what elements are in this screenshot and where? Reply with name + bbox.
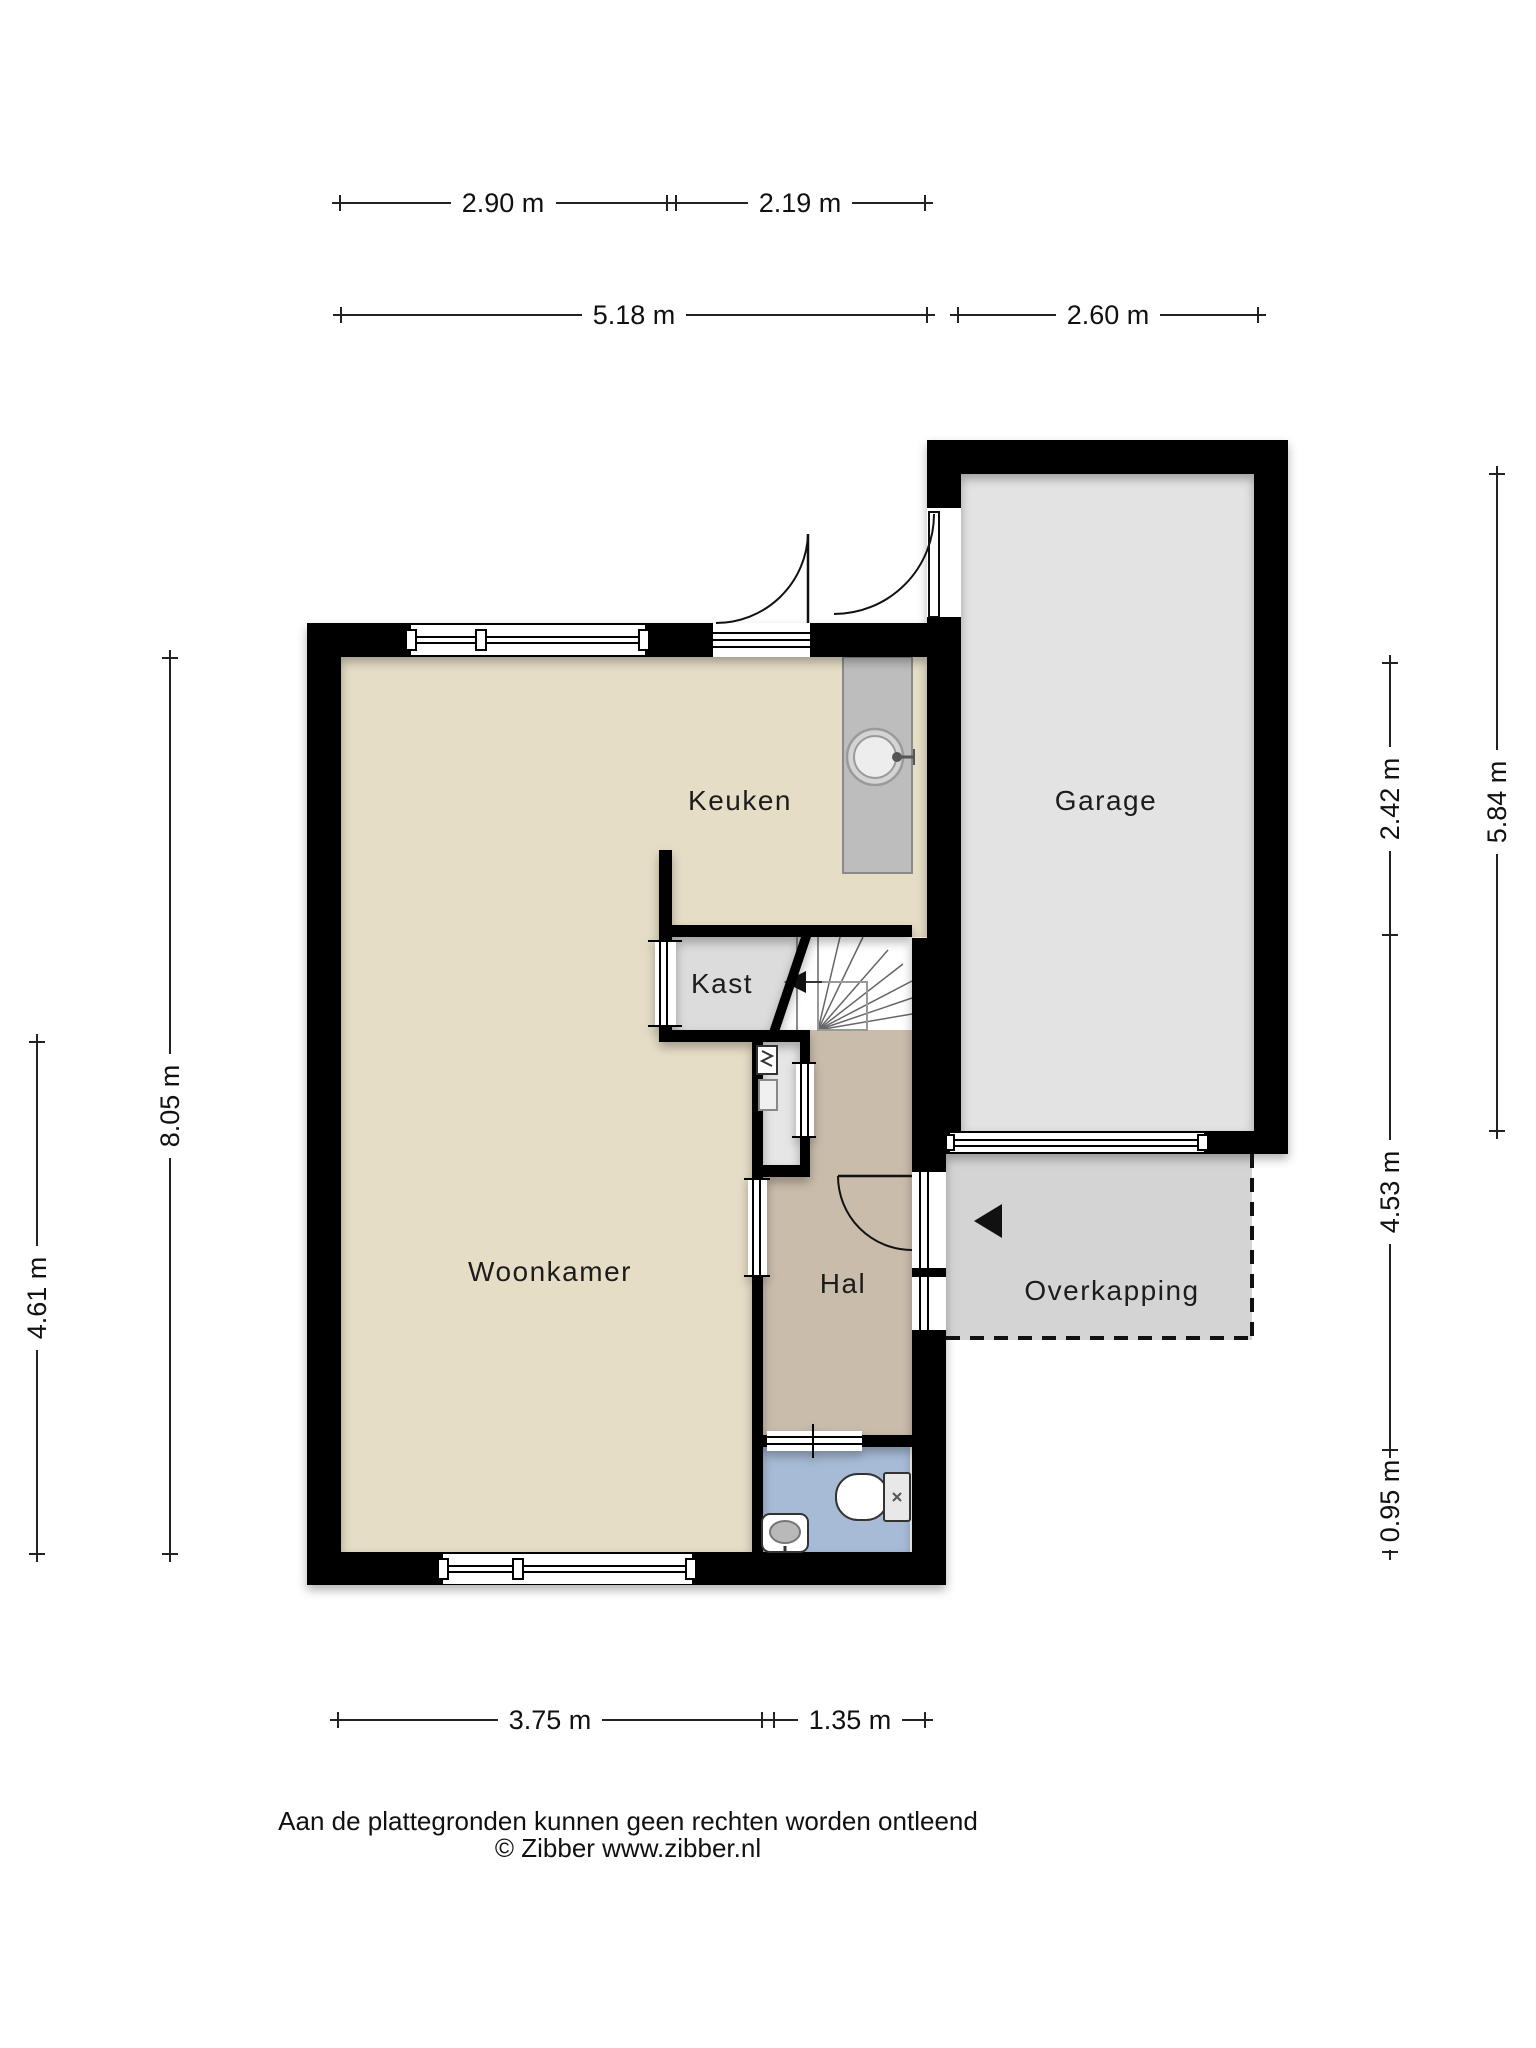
wall-meter-bottom bbox=[752, 1165, 810, 1177]
dim-right-095: 0.95 m bbox=[1375, 1442, 1405, 1560]
room-label-garage: Garage bbox=[1055, 785, 1157, 816]
wall-kast-bottom bbox=[659, 1030, 810, 1042]
front-door-opening bbox=[912, 1172, 946, 1268]
dim-label: 4.53 m bbox=[1375, 1151, 1405, 1234]
footer-copyright: © Zibber www.zibber.nl bbox=[495, 1833, 761, 1863]
dim-left-461: 4.61 m bbox=[22, 1034, 52, 1562]
dim-label: 5.84 m bbox=[1482, 761, 1512, 844]
room-overkapping-floor bbox=[946, 1154, 1252, 1340]
dim-label: 4.61 m bbox=[22, 1257, 52, 1340]
room-label-overkapping: Overkapping bbox=[1024, 1275, 1199, 1306]
wall-garage-top bbox=[927, 440, 1288, 474]
window-top bbox=[406, 625, 649, 655]
wall-stairs-right bbox=[912, 938, 961, 1131]
wall-keuken-garage bbox=[927, 623, 961, 938]
wall-woonkamer-hal bbox=[752, 1042, 763, 1552]
dim-bottom-375: 3.75 m bbox=[330, 1705, 770, 1735]
dim-top-518: 5.18 m bbox=[333, 300, 935, 330]
window-garage-bottom bbox=[946, 1133, 1208, 1152]
footer: Aan de plattegronden kunnen geen rechten… bbox=[278, 1806, 978, 1863]
wall-keuken-woonkamer-stub bbox=[659, 850, 672, 927]
dim-label: 2.60 m bbox=[1067, 300, 1150, 330]
wall-house-left bbox=[307, 623, 341, 1585]
dim-label: 0.95 m bbox=[1375, 1460, 1405, 1543]
dim-right-584: 5.84 m bbox=[1482, 466, 1512, 1139]
dim-right-242: 2.42 m bbox=[1375, 655, 1405, 943]
dim-label: 2.90 m bbox=[462, 188, 545, 218]
room-label-kast: Kast bbox=[691, 968, 753, 999]
room-label-keuken: Keuken bbox=[688, 785, 792, 816]
floor-plan: Keuken Garage Kast Woonkamer Hal Overkap… bbox=[0, 0, 1536, 2048]
dim-label: 1.35 m bbox=[809, 1705, 892, 1735]
wall-garage-right bbox=[1254, 440, 1288, 1154]
garage-side-door-opening bbox=[927, 508, 961, 617]
room-label-hal: Hal bbox=[820, 1268, 867, 1299]
dim-top-219: 2.19 m bbox=[668, 188, 933, 218]
washbasin-icon bbox=[762, 1514, 808, 1553]
footer-disclaimer: Aan de plattegronden kunnen geen rechten… bbox=[278, 1806, 978, 1836]
wall-kast-top bbox=[659, 925, 912, 937]
garage-door-arc bbox=[834, 514, 934, 614]
keuken-exterior-door-opening bbox=[713, 623, 810, 657]
window-sidelight-front bbox=[912, 1277, 946, 1330]
dim-label: 5.18 m bbox=[593, 300, 676, 330]
dim-bottom-135: 1.35 m bbox=[766, 1705, 933, 1735]
dim-label: 2.19 m bbox=[759, 188, 842, 218]
window-bottom bbox=[438, 1554, 696, 1584]
keuken-door-arc bbox=[716, 534, 808, 623]
dim-label: 8.05 m bbox=[155, 1065, 185, 1148]
toilet-icon bbox=[836, 1473, 910, 1521]
room-keuken-floor bbox=[341, 657, 927, 937]
room-label-woonkamer: Woonkamer bbox=[468, 1256, 632, 1287]
dim-label: 2.42 m bbox=[1375, 758, 1405, 841]
kitchen-counter bbox=[843, 657, 914, 873]
dim-top-260: 2.60 m bbox=[950, 300, 1266, 330]
dim-left-805: 8.05 m bbox=[155, 650, 185, 1562]
dim-top-290: 2.90 m bbox=[332, 188, 675, 218]
dim-label: 3.75 m bbox=[509, 1705, 592, 1735]
dim-right-453: 4.53 m bbox=[1375, 927, 1405, 1458]
